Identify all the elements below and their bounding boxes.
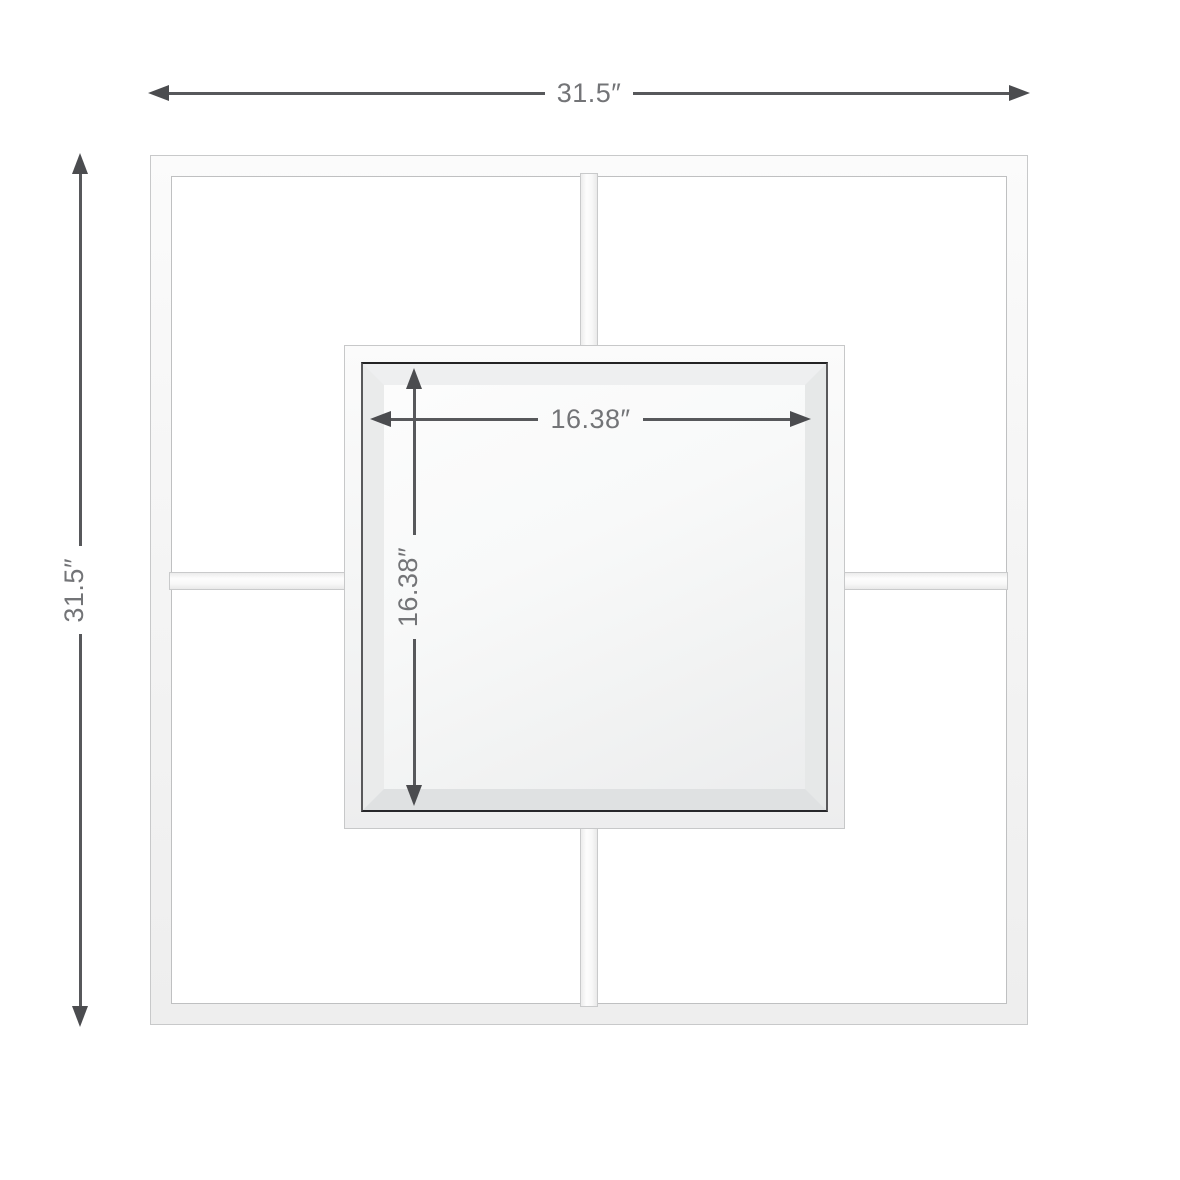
arrowhead-left-icon [148,85,169,101]
arrowhead-left-icon [370,411,391,427]
dimension-label-mirror-width: 16.38″ [550,406,630,433]
dimension-line [633,92,1009,95]
frame-connector-left [169,572,347,590]
dimension-line [169,92,545,95]
arrowhead-up-icon [72,153,88,174]
dimension-mirror-width: 16.38″ [370,410,811,428]
dimension-overall-width: 31.5″ [148,84,1030,102]
dimension-line [79,174,82,546]
arrowhead-down-icon [72,1006,88,1027]
mirror-face [384,385,805,789]
dimension-line [413,639,416,785]
dimension-line [643,418,790,421]
dimension-overall-height: 31.5″ [71,153,89,1027]
dimension-line [79,634,82,1006]
frame-connector-top [580,173,598,348]
dimension-label-overall-width: 31.5″ [557,80,622,107]
dimension-label-overall-height: 31.5″ [61,558,88,623]
frame-connector-right [842,572,1008,590]
dimension-mirror-height: 16.38″ [405,368,423,806]
frame-connector-bottom [580,826,598,1007]
arrowhead-down-icon [406,785,422,806]
mirror-dimension-diagram: 31.5″ 31.5″ 16.38″ 16.38 [0,0,1180,1180]
arrowhead-right-icon [790,411,811,427]
dimension-line [413,389,416,535]
arrowhead-up-icon [406,368,422,389]
arrowhead-right-icon [1009,85,1030,101]
dimension-label-mirror-height: 16.38″ [395,547,422,627]
